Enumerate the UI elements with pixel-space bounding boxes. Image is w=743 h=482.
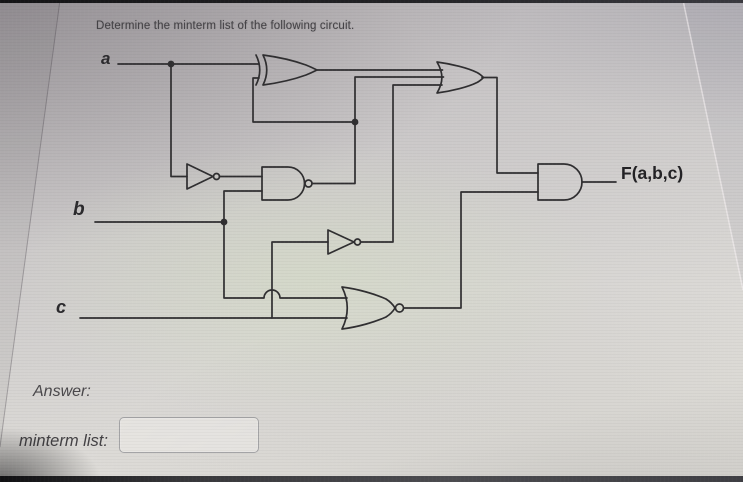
input-label-a: a bbox=[101, 49, 110, 69]
wire-nand-output bbox=[312, 77, 444, 184]
not-gate-1 bbox=[187, 164, 262, 189]
minterm-list-input[interactable] bbox=[119, 417, 259, 453]
wire-input-a bbox=[118, 64, 259, 177]
answer-label: Answer: bbox=[33, 383, 91, 401]
logic-circuit-diagram bbox=[0, 0, 743, 482]
question-text: Determine the minterm list of the follow… bbox=[96, 20, 354, 32]
wire-or-output bbox=[482, 78, 538, 174]
wire-input-b bbox=[95, 191, 347, 298]
input-label-b: b bbox=[73, 199, 85, 221]
xor-gate bbox=[256, 55, 317, 85]
screen-bottom-bezel bbox=[0, 476, 743, 482]
wire-input-c bbox=[80, 242, 347, 318]
photographed-screen: Determine the minterm list of the follow… bbox=[0, 0, 743, 482]
wire-not2-output bbox=[361, 85, 443, 242]
junction-nand-out bbox=[352, 119, 359, 126]
screen-top-bezel bbox=[0, 0, 743, 3]
junction-b bbox=[221, 219, 228, 226]
and-gate bbox=[538, 164, 582, 200]
nor-gate bbox=[342, 287, 404, 329]
input-label-c: c bbox=[56, 297, 66, 318]
output-label: F(a,b,c) bbox=[621, 163, 683, 184]
minterm-list-label: minterm list: bbox=[19, 432, 108, 451]
nand-gate bbox=[262, 167, 312, 200]
not-gate-2 bbox=[328, 230, 361, 254]
junction-a bbox=[168, 61, 175, 68]
wire-nor-output bbox=[404, 192, 539, 308]
photo-artifacts bbox=[0, 0, 743, 447]
